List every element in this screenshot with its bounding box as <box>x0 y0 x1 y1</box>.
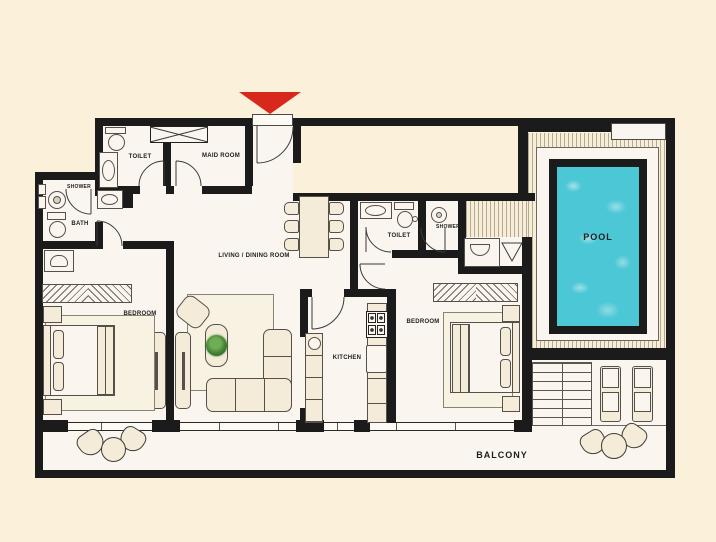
bed-2-headboard <box>512 322 520 393</box>
toilet-bowl <box>397 211 413 228</box>
room-label-toilet-2: TOILET <box>388 233 411 239</box>
wall-segment <box>300 289 312 297</box>
wall-segment <box>344 289 396 297</box>
closet-hatch <box>476 284 517 301</box>
pool-walkway-deck <box>466 201 528 237</box>
stove-burner <box>368 325 376 335</box>
wall-segment <box>350 201 358 297</box>
room-label-shower-2: SHOWER <box>436 224 460 230</box>
bed-2-foot-throw <box>452 324 470 393</box>
wall-segment <box>293 118 528 126</box>
closet-hatch <box>434 284 476 301</box>
wall-segment <box>293 126 301 163</box>
plant <box>206 335 227 356</box>
wall-segment <box>387 297 396 423</box>
sink-basin <box>102 160 115 181</box>
entry-vestibule <box>250 126 293 193</box>
bed-1-headboard <box>43 325 51 396</box>
room-label-toilet-1: TOILET <box>129 154 152 160</box>
stove-burner <box>377 325 385 335</box>
room-label-balcony: BALCONY <box>476 450 528 460</box>
room-label-kitchen: KITCHEN <box>333 355 361 361</box>
dining-chair <box>329 202 344 215</box>
nightstand <box>502 396 520 412</box>
wall-fixture <box>38 184 46 195</box>
closet-hatch <box>88 285 131 302</box>
room-label-shower-1: SHOWER <box>67 184 91 190</box>
wall-segment <box>522 237 532 423</box>
dining-chair <box>329 238 344 251</box>
bed-2-pillow <box>500 359 511 388</box>
tv-screen <box>182 352 185 390</box>
tv-screen <box>155 352 158 390</box>
sink-basin <box>101 194 118 205</box>
room-label-maid-room: MAID ROOM <box>202 153 240 159</box>
room-label-bath: BATH <box>71 221 88 227</box>
wall-segment <box>458 266 530 274</box>
dining-table <box>299 196 329 258</box>
wall-segment <box>518 126 528 193</box>
wall-segment <box>35 172 103 180</box>
toilet-bowl <box>108 134 125 151</box>
stairs <box>532 362 592 426</box>
bedroom-dresser-inner <box>50 255 68 267</box>
room-label-living-dining: LIVING / DINING ROOM <box>218 253 289 259</box>
entry-door-threshold <box>252 114 293 126</box>
wall-segment <box>166 186 174 194</box>
window-pier <box>152 420 180 432</box>
closet-2 <box>433 283 518 302</box>
toilet-tank <box>394 202 414 210</box>
sun-lounger-backrest <box>634 368 651 388</box>
room-label-bedroom-2: BEDROOM <box>406 319 439 325</box>
wall-segment <box>123 188 133 208</box>
balcony-table <box>601 433 627 459</box>
toilet-flush-knob <box>412 216 418 222</box>
bed-1-pillow <box>53 362 64 391</box>
nightstand <box>43 306 62 323</box>
toilet-tank <box>47 212 66 220</box>
stove-burner <box>377 313 385 323</box>
wall-segment <box>95 222 103 249</box>
fridge <box>366 345 387 373</box>
shower-drain-inner <box>436 212 442 218</box>
wall-segment <box>245 126 253 186</box>
wall-segment <box>300 297 308 337</box>
closet-hatch <box>43 285 88 302</box>
wall-segment <box>163 143 171 186</box>
sun-lounger-seat <box>634 392 651 412</box>
dining-chair <box>284 238 299 251</box>
dining-chair <box>284 220 299 233</box>
shower-drain-inner <box>53 196 61 204</box>
toilet-bowl <box>49 221 66 238</box>
wall-segment <box>522 348 666 360</box>
window-pier <box>40 420 68 432</box>
closet-box <box>150 126 208 143</box>
wall-segment <box>123 241 174 249</box>
bed-1-pillow <box>53 330 64 359</box>
entrance-arrow-icon <box>239 92 301 114</box>
sun-lounger-backrest <box>602 368 619 388</box>
nightstand <box>43 399 62 415</box>
room-label-bedroom-1: BEDROOM <box>123 311 156 317</box>
terrace-wall-niche <box>611 123 666 140</box>
bed-2-pillow <box>500 327 511 356</box>
wall-segment <box>35 172 43 478</box>
wall-segment <box>95 118 252 126</box>
wall-segment <box>293 193 535 201</box>
stove-burner <box>368 313 376 323</box>
nightstand <box>502 305 520 322</box>
window-pier <box>514 420 532 432</box>
bed-1-foot-throw <box>97 326 115 395</box>
wall-segment <box>202 186 252 194</box>
sink-basin <box>365 205 386 216</box>
wall-segment <box>166 249 174 423</box>
floor-plan: TOILET MAID ROOM SHOWER BATH LIVING / DI… <box>0 0 716 542</box>
sun-lounger-seat <box>602 392 619 412</box>
sofa-bottom-section <box>206 378 292 412</box>
dining-chair <box>284 202 299 215</box>
wall-segment <box>666 118 675 478</box>
kitchen-sink <box>308 337 321 350</box>
balcony-table <box>101 437 126 462</box>
wall-segment <box>35 241 95 249</box>
closet-1 <box>42 284 132 303</box>
wall-segment <box>392 250 466 258</box>
wall-segment <box>35 470 675 478</box>
room-label-pool: POOL <box>583 232 613 242</box>
balcony-sliding-windows <box>43 422 522 431</box>
wall-segment <box>418 201 426 250</box>
wall-fixture <box>38 196 46 209</box>
dining-chair <box>329 220 344 233</box>
pool-water <box>557 167 639 326</box>
toilet-tank <box>105 127 126 134</box>
